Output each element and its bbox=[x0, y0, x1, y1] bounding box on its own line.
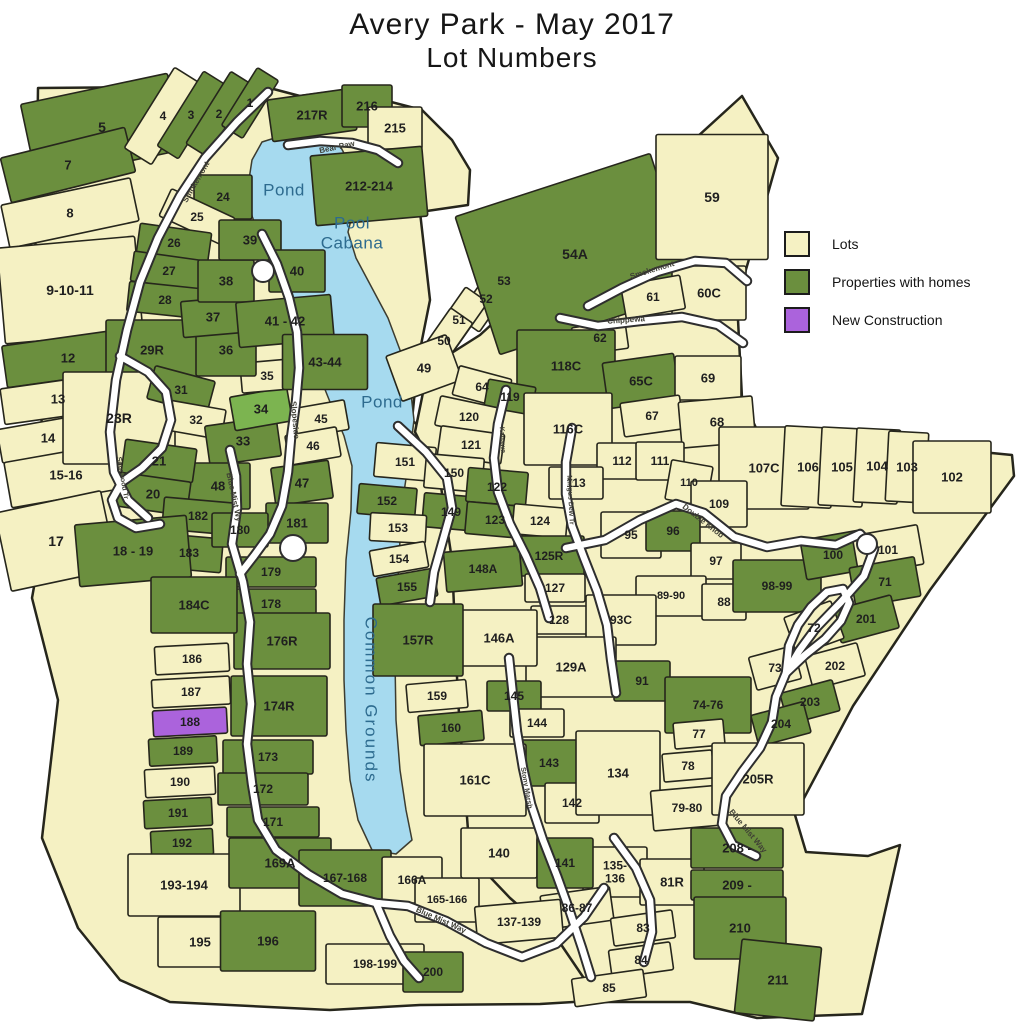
lot-label-32: 32 bbox=[189, 413, 203, 427]
lot-label-128: 128 bbox=[549, 613, 569, 627]
water-label-Pond: Pond bbox=[361, 393, 403, 412]
lot-label-134: 134 bbox=[607, 766, 629, 781]
lot-label-50: 50 bbox=[437, 334, 451, 348]
lot-label-2: 2 bbox=[216, 107, 223, 121]
lot-label-3: 3 bbox=[188, 108, 195, 122]
lot-label-208: 208 - bbox=[722, 841, 752, 856]
lot-label-212-214: 212-214 bbox=[345, 179, 393, 194]
lot-label-192: 192 bbox=[172, 836, 192, 850]
lot-label-144: 144 bbox=[527, 716, 547, 730]
lot-label-121: 121 bbox=[461, 438, 481, 452]
lot-label-186: 186 bbox=[182, 652, 202, 666]
lot-label-157R: 157R bbox=[402, 633, 434, 648]
lot-label-25: 25 bbox=[190, 210, 204, 224]
road-label-Kanawa: Kanawa bbox=[498, 427, 506, 454]
culdesac-1 bbox=[280, 535, 306, 561]
lot-label-49: 49 bbox=[417, 361, 431, 376]
lot-label-17: 17 bbox=[48, 533, 64, 549]
lot-label-62: 62 bbox=[593, 331, 607, 345]
lot-label-116C: 116C bbox=[553, 422, 584, 437]
lot-label-142: 142 bbox=[562, 796, 582, 810]
lot-label-51: 51 bbox=[452, 313, 466, 327]
lot-label-31: 31 bbox=[174, 383, 188, 397]
lot-label-13: 13 bbox=[51, 392, 65, 407]
lot-map-canvas: 5789-10-1112131415-16174321242526272829R… bbox=[0, 0, 1024, 1024]
lot-label-112: 112 bbox=[612, 454, 632, 468]
lot-label-216: 216 bbox=[356, 99, 378, 114]
lot-label-84: 84 bbox=[634, 953, 648, 967]
lot-label-1: 1 bbox=[247, 96, 254, 110]
lot-label-193-194: 193-194 bbox=[160, 878, 208, 893]
lot-label-154: 154 bbox=[389, 552, 409, 566]
map-title-line2: Lot Numbers bbox=[0, 42, 1024, 74]
lot-label-135-136: 135-136 bbox=[603, 859, 627, 886]
lot-label-105: 105 bbox=[831, 460, 853, 475]
legend-label-lots: Lots bbox=[832, 236, 858, 252]
lot-label-195: 195 bbox=[189, 935, 211, 950]
lot-label-71: 71 bbox=[878, 575, 892, 589]
lot-label-148A: 148A bbox=[469, 562, 498, 576]
lot-label-8: 8 bbox=[66, 206, 73, 221]
lot-label-65C: 65C bbox=[629, 374, 653, 389]
lot-label-188: 188 bbox=[180, 715, 200, 729]
legend-row-new-construction: New Construction bbox=[784, 307, 971, 333]
legend-row-homes: Properties with homes bbox=[784, 269, 971, 295]
lot-label-200: 200 bbox=[423, 965, 443, 979]
lot-label-155: 155 bbox=[397, 580, 417, 594]
lot-label-79-80: 79-80 bbox=[672, 801, 703, 815]
lot-label-173: 173 bbox=[258, 750, 278, 764]
lot-label-111: 111 bbox=[651, 454, 670, 468]
lot-label-101: 101 bbox=[878, 543, 898, 557]
legend-label-new-construction: New Construction bbox=[832, 312, 943, 328]
legend-row-lots: Lots bbox=[784, 231, 971, 257]
lot-label-110: 110 bbox=[680, 477, 698, 489]
lot-label-215: 215 bbox=[384, 121, 406, 136]
lot-label-39: 39 bbox=[243, 233, 257, 248]
lot-label-81R: 81R bbox=[660, 875, 684, 890]
lot-label-40: 40 bbox=[290, 264, 304, 279]
lot-label-27: 27 bbox=[162, 264, 176, 278]
lot-label-18-19: 18 - 19 bbox=[113, 544, 153, 559]
lot-label-21: 21 bbox=[152, 454, 166, 469]
lot-label-53: 53 bbox=[497, 274, 511, 288]
lot-label-64: 64 bbox=[475, 380, 489, 394]
lot-label-172: 172 bbox=[253, 782, 273, 796]
water-label-Common-Grounds: Common Grounds bbox=[362, 617, 381, 784]
lot-label-210: 210 bbox=[729, 921, 751, 936]
lot-label-107C: 107C bbox=[748, 461, 780, 476]
lot-label-74-76: 74-76 bbox=[693, 698, 724, 712]
lot-label-48: 48 bbox=[211, 479, 225, 494]
lot-label-191: 191 bbox=[168, 806, 188, 820]
lot-label-123: 123 bbox=[485, 513, 505, 527]
lot-label-145: 145 bbox=[504, 689, 524, 703]
lot-label-24: 24 bbox=[216, 190, 230, 204]
lot-label-159: 159 bbox=[427, 689, 447, 703]
lot-label-183: 183 bbox=[179, 546, 199, 560]
legend-swatch-lots bbox=[784, 231, 810, 257]
lot-label-146A: 146A bbox=[483, 631, 515, 646]
lot-label-196: 196 bbox=[257, 934, 279, 949]
lot-label-28: 28 bbox=[158, 293, 172, 307]
lot-label-41-42: 41 - 42 bbox=[265, 314, 305, 329]
lot-label-189: 189 bbox=[173, 744, 193, 758]
legend-swatch-homes bbox=[784, 269, 810, 295]
lot-label-96: 96 bbox=[666, 524, 680, 538]
lot-label-38: 38 bbox=[219, 274, 233, 289]
lot-label-140: 140 bbox=[488, 846, 510, 861]
avery-park-lot-map: 5789-10-1112131415-16174321242526272829R… bbox=[0, 0, 1024, 1024]
lot-label-127: 127 bbox=[545, 581, 565, 595]
lot-label-165-166: 165-166 bbox=[427, 894, 467, 906]
lot-label-29R: 29R bbox=[140, 343, 164, 358]
lot-label-86-87: 86-87 bbox=[562, 901, 593, 915]
lot-label-35: 35 bbox=[260, 369, 274, 383]
lot-label-34: 34 bbox=[254, 402, 269, 417]
lot-label-7: 7 bbox=[64, 158, 71, 173]
lot-label-104: 104 bbox=[866, 459, 888, 474]
lot-label-143: 143 bbox=[539, 756, 559, 770]
map-title: Avery Park - May 2017 Lot Numbers bbox=[0, 8, 1024, 74]
lot-label-5: 5 bbox=[98, 119, 106, 135]
lot-label-203: 203 bbox=[800, 695, 820, 709]
lot-label-211: 211 bbox=[768, 973, 789, 988]
lot-label-167-168: 167-168 bbox=[323, 871, 367, 885]
lot-label-67: 67 bbox=[645, 409, 659, 423]
lot-label-93C: 93C bbox=[610, 613, 632, 627]
lot-label-77: 77 bbox=[692, 727, 706, 741]
lot-label-122: 122 bbox=[487, 480, 507, 494]
lot-label-97: 97 bbox=[709, 554, 723, 568]
culdesac-2 bbox=[252, 260, 274, 282]
lot-label-198-199: 198-199 bbox=[353, 957, 397, 971]
lot-label-33: 33 bbox=[236, 434, 250, 449]
lot-label-45: 45 bbox=[314, 412, 328, 426]
lot-label-201: 201 bbox=[856, 612, 876, 626]
lot-label-182: 182 bbox=[188, 509, 208, 523]
lot-label-91: 91 bbox=[635, 674, 649, 688]
lot-label-9-10-11: 9-10-11 bbox=[46, 282, 94, 298]
lot-label-43-44: 43-44 bbox=[308, 355, 342, 370]
lot-label-59: 59 bbox=[704, 189, 720, 205]
lot-label-36: 36 bbox=[219, 343, 233, 358]
lot-label-124: 124 bbox=[530, 514, 550, 528]
lot-label-68: 68 bbox=[710, 415, 724, 430]
lot-label-102: 102 bbox=[941, 470, 963, 485]
lot-label-98-99: 98-99 bbox=[762, 579, 793, 593]
lot-label-202: 202 bbox=[825, 659, 845, 673]
lot-label-14: 14 bbox=[41, 431, 56, 446]
lot-label-129A: 129A bbox=[555, 660, 587, 675]
lot-label-179: 179 bbox=[261, 565, 281, 579]
lot-label-106: 106 bbox=[797, 460, 819, 475]
lot-label-60C: 60C bbox=[697, 286, 721, 301]
lot-label-169A: 169A bbox=[264, 856, 296, 871]
lot-label-52: 52 bbox=[479, 292, 493, 306]
lot-label-120: 120 bbox=[459, 410, 479, 424]
lot-label-176R: 176R bbox=[266, 634, 298, 649]
lot-label-15-16: 15-16 bbox=[49, 468, 82, 483]
lot-label-166A: 166A bbox=[398, 873, 427, 887]
lot-label-151: 151 bbox=[395, 455, 415, 469]
lot-label-23R: 23R bbox=[106, 410, 132, 426]
lot-label-181: 181 bbox=[286, 516, 308, 531]
lot-label-88: 88 bbox=[717, 595, 731, 609]
lot-label-20: 20 bbox=[146, 487, 160, 502]
lot-label-4: 4 bbox=[160, 109, 167, 123]
lot-label-137-139: 137-139 bbox=[497, 915, 541, 929]
legend: Lots Properties with homes New Construct… bbox=[784, 231, 971, 345]
lot-label-209: 209 - bbox=[722, 878, 752, 893]
lot-label-95: 95 bbox=[624, 528, 638, 542]
lot-label-205R: 205R bbox=[742, 772, 774, 787]
water-label-Pond: Pond bbox=[263, 181, 305, 200]
lot-label-89-90: 89-90 bbox=[657, 590, 685, 602]
lot-label-73: 73 bbox=[768, 661, 782, 675]
lot-label-83: 83 bbox=[636, 921, 650, 935]
lot-label-46: 46 bbox=[306, 439, 320, 453]
map-title-line1: Avery Park - May 2017 bbox=[0, 8, 1024, 42]
lot-label-149: 149 bbox=[441, 505, 461, 519]
lot-label-217R: 217R bbox=[296, 108, 328, 123]
lot-label-78: 78 bbox=[681, 759, 695, 773]
lot-label-190: 190 bbox=[170, 775, 190, 789]
lot-label-150: 150 bbox=[444, 466, 464, 480]
lot-label-37: 37 bbox=[206, 310, 220, 325]
lot-label-174R: 174R bbox=[263, 699, 295, 714]
lot-label-160: 160 bbox=[441, 721, 461, 735]
lot-label-180: 180 bbox=[230, 523, 250, 537]
lot-label-72: 72 bbox=[807, 621, 821, 635]
lot-label-204: 204 bbox=[771, 717, 791, 731]
lot-label-118C: 118C bbox=[551, 359, 582, 374]
lot-label-61: 61 bbox=[646, 290, 660, 304]
lot-label-119: 119 bbox=[500, 390, 520, 404]
lot-label-12: 12 bbox=[61, 351, 75, 366]
lot-label-187: 187 bbox=[181, 685, 201, 699]
lot-label-161C: 161C bbox=[459, 773, 491, 788]
lot-label-178: 178 bbox=[261, 597, 281, 611]
culdesac-3 bbox=[857, 534, 877, 554]
lot-label-184C: 184C bbox=[178, 598, 210, 613]
lot-label-109: 109 bbox=[709, 497, 729, 511]
lot-label-85: 85 bbox=[602, 981, 616, 995]
lot-label-171: 171 bbox=[263, 815, 283, 829]
lot-label-153: 153 bbox=[388, 521, 408, 535]
lot-label-152: 152 bbox=[377, 494, 397, 508]
lot-label-47: 47 bbox=[295, 476, 309, 491]
lot-label-26: 26 bbox=[167, 236, 181, 250]
lot-label-125R: 125R bbox=[535, 549, 564, 563]
lot-label-54A: 54A bbox=[562, 246, 588, 262]
legend-label-homes: Properties with homes bbox=[832, 274, 971, 290]
legend-swatch-new-construction bbox=[784, 307, 810, 333]
lot-label-103: 103 bbox=[896, 460, 918, 475]
lot-label-100: 100 bbox=[823, 548, 843, 562]
lot-label-69: 69 bbox=[701, 371, 715, 386]
lot-label-141: 141 bbox=[555, 856, 575, 870]
